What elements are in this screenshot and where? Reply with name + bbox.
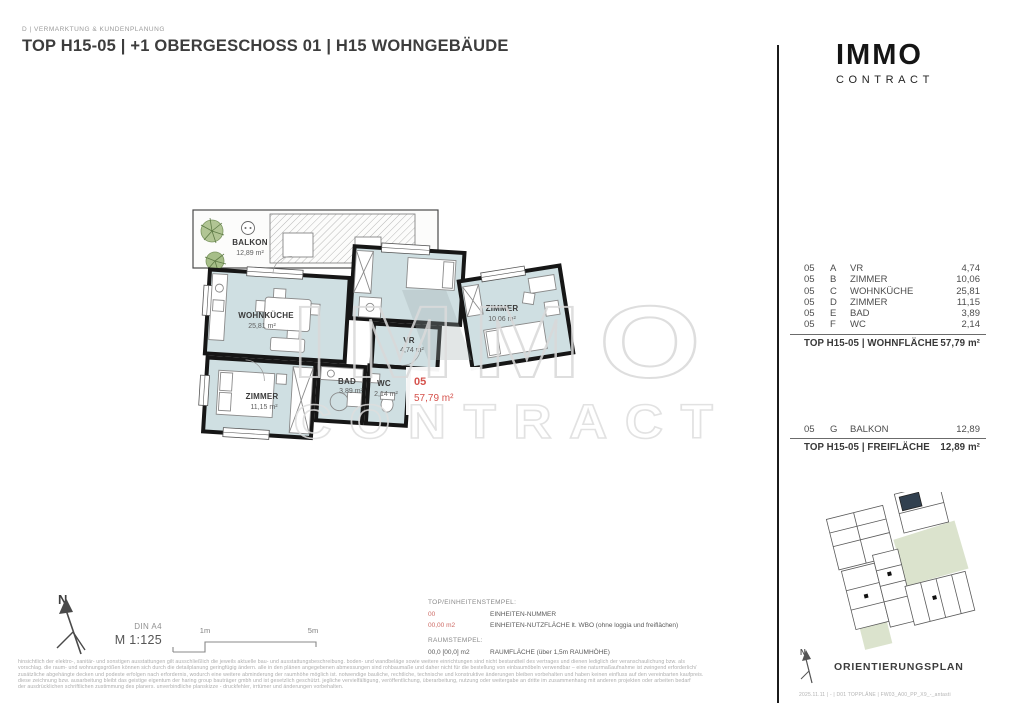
svg-text:5m: 5m [308,626,318,635]
company-logo: IMMO CONTRACT [836,41,934,86]
table-row: 05D ZIMMER11,15 [790,297,986,308]
wohnflaeche-table: 05A VR4,74 05B ZIMMER10,06 05C WOHNKÜCHE… [790,263,986,349]
legend-row: 00,00 m2 EINHEITEN-NUTZFLÄCHE lt. WBO (o… [428,620,758,631]
paper-format-label: DIN A4 [96,622,162,631]
table-row: 05A VR4,74 [790,263,986,274]
legend-label: EINHEITEN-NUTZFLÄCHE lt. WBO (ohne loggi… [490,620,758,631]
logo-contract: CONTRACT [836,74,934,86]
watermark-contract: CONTRACT [294,394,731,448]
room-label: BALKON [232,238,267,247]
plan-sheet: D | VERMARKTUNG & KUNDENPLANUNG TOP H15-… [0,0,1024,724]
scale-label: M 1:125 [96,633,162,647]
total-label: TOP H15-05 | FREIFLÄCHE [804,442,930,453]
table-symbol-icon [242,222,255,235]
table-row: 05E BAD3,89 [790,308,986,319]
stamp-legend: TOP/EINHEITENSTEMPEL: 00 EINHEITEN-NUMME… [428,597,758,658]
header-department: D | VERMARKTUNG & KUNDENPLANUNG [22,26,509,33]
plan-footnote: 2025.11.11 | - | D01 TOPPLÄNE | FW03_A00… [799,692,951,698]
disclaimer-line: zusätzliche abgehängte decken und podest… [18,672,746,678]
header: D | VERMARKTUNG & KUNDENPLANUNG TOP H15-… [22,26,509,56]
logo-immo: IMMO [836,41,934,70]
total-label: TOP H15-05 | WOHNFLÄCHE [804,338,938,349]
legend-sample: 00 [428,609,490,620]
table-total-row: TOP H15-05 | FREIFLÄCHE 12,89 m² [790,438,986,453]
floor-plan: 05 57,79 m² BALKON 12,89 m² WOHNKÜCHE 25… [150,195,790,495]
room-area: 11,15 m² [250,404,278,411]
freiflaeche-table: 05G BALKON12,89 TOP H15-05 | FREIFLÄCHE … [790,424,986,453]
orientation-title: ORIENTIERUNGSPLAN [834,661,964,673]
table-row: 05G BALKON12,89 [790,424,986,435]
scale-bar: 1m 5m [170,620,324,656]
watermark: IMMO CONTRACT [292,285,731,449]
legend-sample: 00,0 [00,0] m2 [428,647,490,658]
room-label: ZIMMER [246,392,279,401]
format-scale-block: DIN A4 M 1:125 [96,622,162,647]
legend-label: EINHEITEN-NUMMER [490,609,758,620]
legend-title: RAUMSTEMPEL: [428,635,758,647]
legend-title: TOP/EINHEITENSTEMPEL: [428,597,758,609]
table-row: 05B ZIMMER10,06 [790,274,986,285]
watermark-immo: IMMO [292,285,719,399]
legend-row: 00 EINHEITEN-NUMMER [428,609,758,620]
total-value: 12,89 m² [940,442,980,453]
room-area: 25,81 m² [248,323,276,330]
table-total-row: TOP H15-05 | WOHNFLÄCHE 57,79 m² [790,334,986,349]
legend-sample: 00,00 m2 [428,620,490,631]
north-arrow-icon: N [798,645,828,687]
table-row: 05C WOHNKÜCHE25,81 [790,286,986,297]
legend-label: RAUMFLÄCHE (über 1,5m RAUMHÖHE) [490,647,758,658]
table-row: 05F WC2,14 [790,319,986,330]
room-area: 12,89 m² [236,250,264,257]
room-label: WOHNKÜCHE [238,311,294,320]
disclaimer: hinsichtlich der elektro-, sanitär- und … [18,659,746,690]
disclaimer-line: der ausdrücklichen schriftlichen zustimm… [18,684,746,690]
total-value: 57,79 m² [940,338,980,349]
page-title: TOP H15-05 | +1 OBERGESCHOSS 01 | H15 WO… [22,37,509,56]
orientation-plan [812,492,980,650]
svg-text:1m: 1m [200,626,210,635]
disclaimer-line: vorschlag. die raum- und wohnungsgrößen … [18,665,746,671]
legend-row: 00,0 [00,0] m2 RAUMFLÄCHE (über 1,5m RAU… [428,647,758,658]
